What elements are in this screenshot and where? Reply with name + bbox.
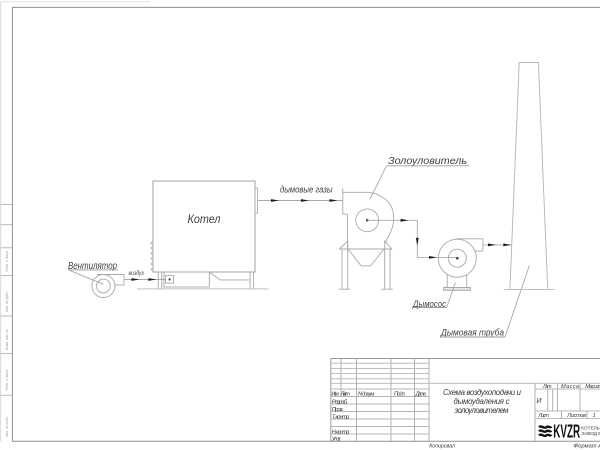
svg-text:Лит.: Лит. [542,384,552,390]
svg-text:Дата: Дата [415,392,427,398]
svg-text:Разраб.: Разраб. [332,399,348,405]
svg-text:Подп. и дата: Подп. и дата [5,251,9,272]
svg-text:золоуловителем: золоуловителем [454,406,510,415]
svg-text:воздух: воздух [129,270,145,277]
svg-text:КОТЕЛЬНЫЙ: КОТЕЛЬНЫЙ [581,424,600,431]
svg-text:Подп.: Подп. [394,392,406,398]
svg-text:Подп. и дата: Подп. и дата [5,370,9,391]
svg-text:Т. контр.: Т. контр. [332,414,350,420]
svg-text:Копировал: Копировал [429,443,455,449]
svg-text:Лист: Лист [538,413,550,419]
svg-text:дымовые газы: дымовые газы [280,185,333,195]
svg-text:дымоудаления с: дымоудаления с [454,397,510,406]
svg-text:Формат А3: Формат А3 [574,443,600,449]
svg-text:ЗАВОД ВОСТОК: ЗАВОД ВОСТОК [581,431,600,436]
svg-text:Котел: Котел [188,212,221,226]
svg-text:Дымовая труба: Дымовая труба [440,328,504,338]
svg-text:Взам. инв. №: Взам. инв. № [5,329,9,350]
svg-text:Инв. № дубл.: Инв. № дубл. [5,291,9,312]
svg-text:Утв.: Утв. [331,437,341,443]
svg-text:Лист: Лист [340,392,351,398]
svg-text:Листов: Листов [566,413,586,419]
svg-text:Н. контр.: Н. контр. [332,429,350,435]
svg-text:1: 1 [593,413,596,419]
svg-text:Золоуловитель: Золоуловитель [388,155,467,167]
svg-text:N докум.: N докум. [358,392,375,398]
svg-text:Пров.: Пров. [332,407,344,413]
svg-text:Изм: Изм [331,392,339,398]
svg-text:KVZR: KVZR [553,420,580,441]
svg-text:Инв. № подл.: Инв. № подл. [5,416,9,437]
svg-text:Масса: Масса [561,384,579,390]
svg-text:Схема воздухоподачи и: Схема воздухоподачи и [443,388,522,397]
svg-text:Масштаб: Масштаб [585,384,600,390]
